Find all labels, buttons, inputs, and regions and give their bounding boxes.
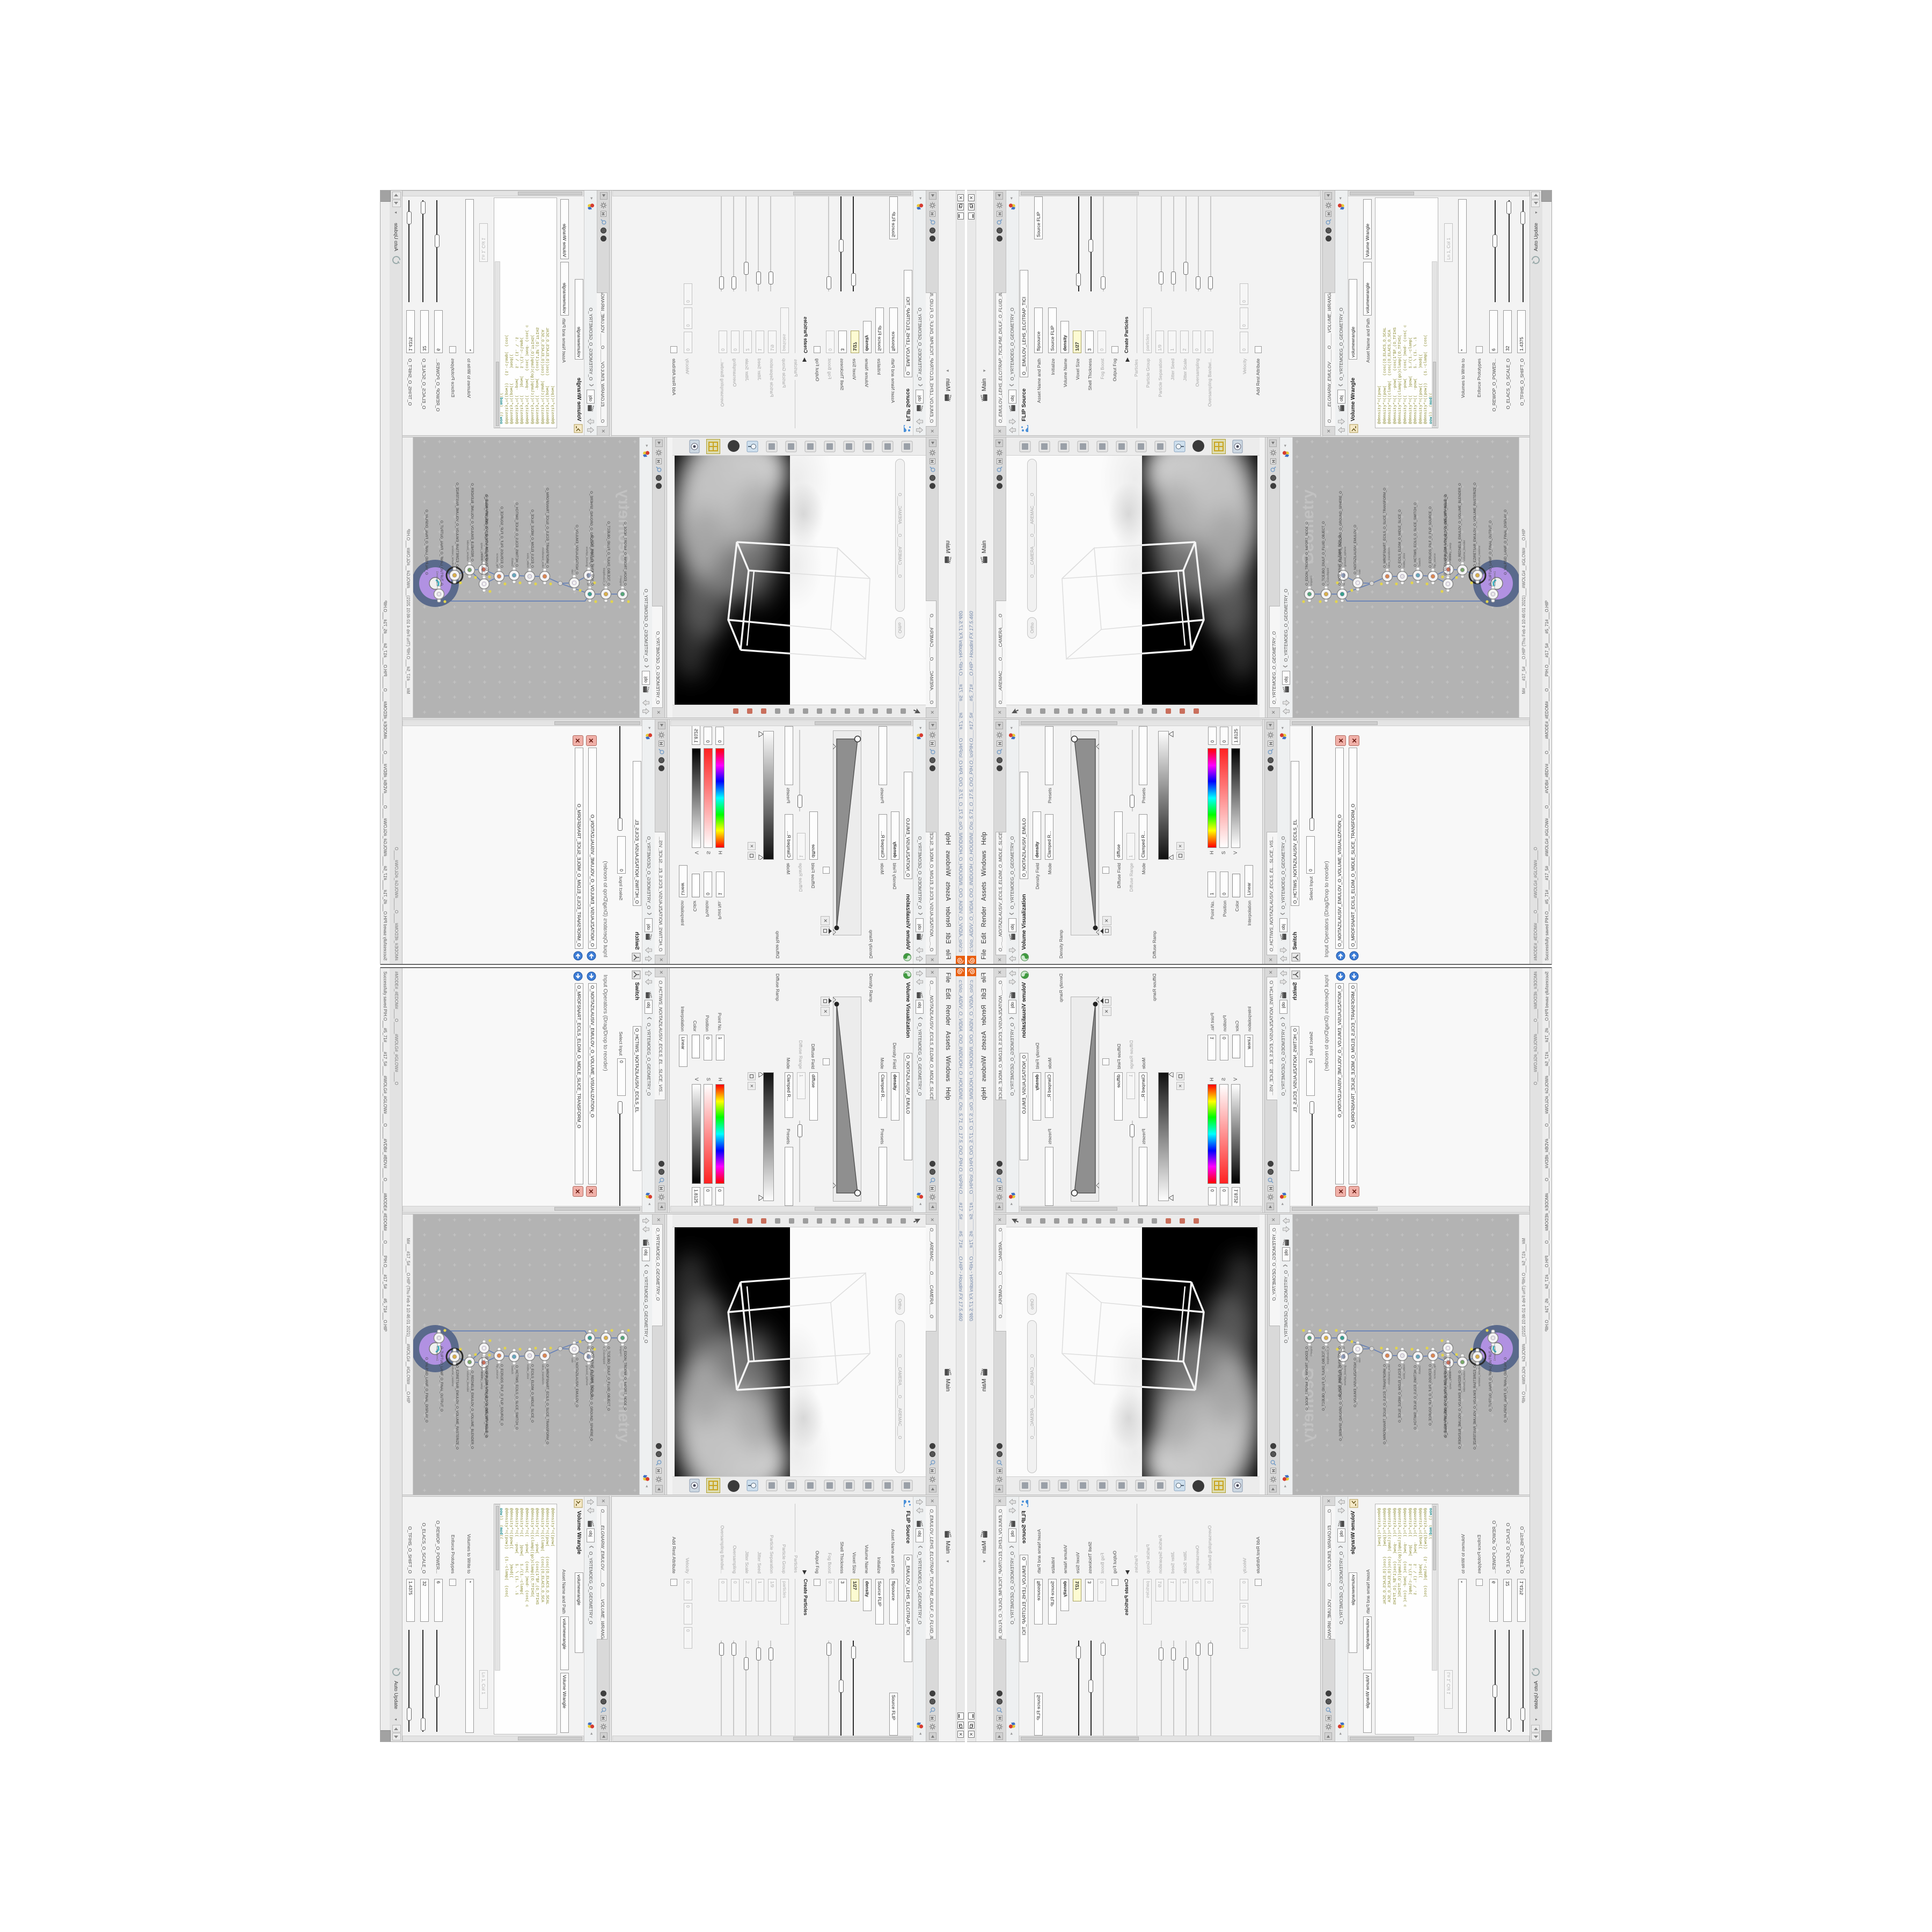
svg-text:midle_slice: midle_slice — [1403, 1364, 1406, 1379]
svg-text:volume_wrangle: volume_wrangle — [1448, 553, 1452, 575]
svg-text:O_YALPSID_LANIF_O_FINAL_DISPLA: O_YALPSID_LANIF_O_FINAL_DISPLAY_O — [425, 509, 428, 575]
svg-text:O_EDON_TROPMI_O_IMPORT_NODE_O: O_EDON_TROPMI_O_IMPORT_NODE_O — [1305, 1346, 1309, 1410]
svg-text:O_NOITAZILAUSIV_EMULOV_O: O_NOITAZILAUSIV_EMULOV_O — [575, 1358, 579, 1407]
svg-text:volume_rasteriz: volume_rasteriz — [1478, 545, 1481, 567]
svg-text:e_Cubeliquid: e_Cubeliquid — [1327, 568, 1330, 586]
svg-text:O_EZIRETSAR_EMULOV_O_VOLUME_RA: O_EZIRETSAR_EMULOV_O_VOLUME_RASTERIZE_O — [1473, 482, 1477, 567]
svg-text:e_Cubeliquid: e_Cubeliquid — [602, 568, 605, 586]
svg-text:O_XOB_KNAT_O_TANK_BOX_O: O_XOB_KNAT_O_TANK_BOX_O — [590, 536, 594, 586]
svg-text:O_HCTIWS_ECILS_O_SLICE_SWITCH_: O_HCTIWS_ECILS_O_SLICE_SWITCH_O — [515, 1365, 518, 1430]
svg-text:O_ECRUOS_PILF_O_FLIP_SOURCE_O: O_ECRUOS_PILF_O_FLIP_SOURCE_O — [500, 507, 503, 568]
svg-text:O_ECILS_ELDIM_O_MIDLE_SLICE_O: O_ECILS_ELDIM_O_MIDLE_SLICE_O — [530, 509, 534, 568]
svg-text:ground_sphere: ground_sphere — [585, 546, 588, 567]
svg-text:O_EZIRETSAR_EMULOV_O_VOLUME_RA: O_EZIRETSAR_EMULOV_O_VOLUME_RASTERIZE_O — [455, 1365, 459, 1450]
svg-text:O_EDON_TROPMI_O_IMPORT_NODE_O: O_EDON_TROPMI_O_IMPORT_NODE_O — [623, 1346, 627, 1410]
svg-text:e_Cubeliquid: e_Cubeliquid — [1327, 1346, 1330, 1364]
svg-text:import1: import1 — [619, 575, 622, 586]
svg-text:O_TCEJBO_DIULF_O_FLUID_OBJECT_: O_TCEJBO_DIULF_O_FLUID_OBJECT_O — [606, 521, 610, 586]
svg-text:O_TCEJBO_DIULF_O_FLUID_OBJECT_: O_TCEJBO_DIULF_O_FLUID_OBJECT_O — [1322, 1346, 1326, 1411]
svg-text:O_ECRUOS_PILF_O_FLIP_SOURCE_O: O_ECRUOS_PILF_O_FLIP_SOURCE_O — [1429, 507, 1432, 568]
svg-text:O_ELGNARW_EMULOV_O_VOLUME_WRAN: O_ELGNARW_EMULOV_O_VOLUME_WRANGLE_O — [485, 495, 488, 575]
svg-text:O_ECILS_ELDIM_O_MIDLE_SLICE_O: O_ECILS_ELDIM_O_MIDLE_SLICE_O — [1398, 509, 1402, 568]
svg-text:flip_source: flip_source — [1433, 553, 1437, 568]
svg-text:O_EZIRETSAR_EMULOV_O_VOLUME_RA: O_EZIRETSAR_EMULOV_O_VOLUME_RASTERIZE_O — [455, 482, 459, 567]
svg-text:O_XOB_KNAT_O_TANK_BOX_O: O_XOB_KNAT_O_TANK_BOX_O — [1338, 536, 1342, 586]
svg-text:O_REDNELB_EMULOV_O_VOLUME_BLEN: O_REDNELB_EMULOV_O_VOLUME_BLENDER_O — [1458, 483, 1462, 561]
svg-text:Switch: Switch — [1418, 1365, 1422, 1374]
svg-text:flip_source: flip_source — [1433, 1364, 1437, 1379]
svg-text:midle_slice: midle_slice — [526, 553, 529, 568]
svg-text:O_MROFSNART_ECILS_O_SLICE_TRAN: O_MROFSNART_ECILS_O_SLICE_TRANSFORM_O — [545, 488, 549, 568]
svg-text:slice_transform: slice_transform — [541, 1364, 544, 1385]
svg-text:O_EZIRETSAR_EMULOV_O_VOLUME_RA: O_EZIRETSAR_EMULOV_O_VOLUME_RASTERIZE_O — [1473, 1365, 1477, 1450]
svg-text:O_YALPSID_LANIF_O_FINAL_DISPLA: O_YALPSID_LANIF_O_FINAL_DISPLAY_O — [1504, 509, 1507, 575]
svg-text:O_TUPTUO_LANIF_O_FINAL_OUTPUT_: O_TUPTUO_LANIF_O_FINAL_OUTPUT_O — [440, 521, 443, 586]
svg-text:transform1: transform1 — [435, 571, 438, 586]
svg-text:tank_box: tank_box — [1343, 573, 1346, 586]
svg-text:O_TCEJBO_DIULF_O_FLUID_OBJECT_: O_TCEJBO_DIULF_O_FLUID_OBJECT_O — [606, 1346, 610, 1411]
svg-text:O_ELGNARW_EMULOV_O_VOLUME_WRAN: O_ELGNARW_EMULOV_O_VOLUME_WRANGLE_O — [485, 1357, 488, 1437]
svg-text:O_NOITAZILAUSIV_EMULOV_O: O_NOITAZILAUSIV_EMULOV_O — [1353, 1358, 1357, 1407]
svg-text:O_YALPSID_LANIF_O_FINAL_DISPLA: O_YALPSID_LANIF_O_FINAL_DISPLAY_O — [425, 1357, 428, 1423]
svg-text:volume_rasteriz: volume_rasteriz — [451, 545, 454, 567]
svg-text:O_REDNELB_EMULOV_O_VOLUME_BLEN: O_REDNELB_EMULOV_O_VOLUME_BLENDER_O — [470, 483, 474, 561]
svg-text:import1: import1 — [619, 1346, 622, 1357]
svg-text:O_EDON_TROPMI_O_IMPORT_NODE_O: O_EDON_TROPMI_O_IMPORT_NODE_O — [1305, 522, 1309, 586]
svg-text:import1: import1 — [1310, 575, 1313, 586]
svg-text:volume_wrangle: volume_wrangle — [480, 553, 484, 575]
svg-text:tank_box: tank_box — [586, 1346, 589, 1359]
svg-text:Switch: Switch — [1418, 558, 1422, 567]
svg-text:O_ELGNARW_EMULOV_O_VOLUME_WRAN: O_ELGNARW_EMULOV_O_VOLUME_WRANGLE_O — [1444, 495, 1447, 575]
svg-text:O_TUPTUO_LANIF_O_FINAL_OUTPUT_: O_TUPTUO_LANIF_O_FINAL_OUTPUT_O — [1489, 521, 1492, 586]
svg-text:O_EDON_TROPMI_O_IMPORT_NODE_O: O_EDON_TROPMI_O_IMPORT_NODE_O — [623, 522, 627, 586]
svg-text:O_MROFSNART_ECILS_O_SLICE_TRAN: O_MROFSNART_ECILS_O_SLICE_TRANSFORM_O — [545, 1364, 549, 1444]
svg-text:volume_blender: volume_blender — [466, 1371, 469, 1392]
svg-text:Switch: Switch — [510, 558, 514, 567]
svg-text:tank_box: tank_box — [1343, 1346, 1346, 1359]
svg-text:O_TUPTUO_LANIF_O_FINAL_OUTPUT_: O_TUPTUO_LANIF_O_FINAL_OUTPUT_O — [440, 1346, 443, 1411]
svg-text:O_ECILS_ELDIM_O_MIDLE_SLICE_O: O_ECILS_ELDIM_O_MIDLE_SLICE_O — [530, 1364, 534, 1423]
svg-text:slice_transform: slice_transform — [541, 547, 544, 568]
svg-text:volume_rasteriz: volume_rasteriz — [451, 1365, 454, 1387]
svg-text:volume_wrangle: volume_wrangle — [1448, 1357, 1452, 1379]
svg-text:midle_slice: midle_slice — [526, 1364, 529, 1379]
svg-text:O_REDNELB_EMULOV_O_VOLUME_BLEN: O_REDNELB_EMULOV_O_VOLUME_BLENDER_O — [1458, 1371, 1462, 1449]
svg-text:tank_box: tank_box — [586, 573, 589, 586]
svg-text:O_ECRUOS_PILF_O_FLIP_SOURCE_O: O_ECRUOS_PILF_O_FLIP_SOURCE_O — [1429, 1364, 1432, 1425]
svg-text:Switch: Switch — [510, 1365, 514, 1374]
svg-text:import1: import1 — [1310, 1346, 1313, 1357]
svg-text:slice_transform: slice_transform — [1388, 547, 1391, 568]
svg-text:flip_source: flip_source — [495, 553, 499, 568]
svg-text:cab: cab — [1358, 1358, 1362, 1363]
svg-text:volume_blender: volume_blender — [466, 540, 469, 561]
svg-text:O_TCEJBO_DIULF_O_FLUID_OBJECT_: O_TCEJBO_DIULF_O_FLUID_OBJECT_O — [1322, 521, 1326, 586]
svg-text:O_ELGNARW_EMULOV_O_VOLUME_WRAN: O_ELGNARW_EMULOV_O_VOLUME_WRANGLE_O — [1444, 1357, 1447, 1437]
svg-text:slice_transform: slice_transform — [1388, 1364, 1391, 1385]
svg-text:midle_slice: midle_slice — [1403, 553, 1406, 568]
svg-text:cab: cab — [1358, 569, 1362, 574]
svg-text:O_HCTIWS_ECILS_O_SLICE_SWITCH_: O_HCTIWS_ECILS_O_SLICE_SWITCH_O — [1414, 502, 1417, 567]
svg-text:O_TUPTUO_LANIF_O_FINAL_OUTPUT_: O_TUPTUO_LANIF_O_FINAL_OUTPUT_O — [1489, 1346, 1492, 1411]
svg-text:cab: cab — [570, 1358, 574, 1363]
svg-text:O_YALPSID_LANIF_O_FINAL_DISPLA: O_YALPSID_LANIF_O_FINAL_DISPLAY_O — [1504, 1357, 1507, 1423]
svg-text:volume_blender: volume_blender — [1463, 1371, 1466, 1392]
svg-text:ground_sphere: ground_sphere — [1344, 1365, 1347, 1386]
svg-text:ground_sphere: ground_sphere — [1344, 546, 1347, 567]
svg-text:O_ECRUOS_PILF_O_FLIP_SOURCE_O: O_ECRUOS_PILF_O_FLIP_SOURCE_O — [500, 1364, 503, 1425]
svg-text:transform1: transform1 — [1494, 1346, 1497, 1361]
svg-text:O_HCTIWS_ECILS_O_SLICE_SWITCH_: O_HCTIWS_ECILS_O_SLICE_SWITCH_O — [1414, 1365, 1417, 1430]
svg-text:O_MROFSNART_ECILS_O_SLICE_TRAN: O_MROFSNART_ECILS_O_SLICE_TRANSFORM_O — [1383, 488, 1387, 568]
svg-text:volume_blender: volume_blender — [1463, 540, 1466, 561]
svg-text:transform1: transform1 — [435, 1346, 438, 1361]
svg-text:volume_wrangle: volume_wrangle — [480, 1357, 484, 1379]
svg-text:volume_rasteriz: volume_rasteriz — [1478, 1365, 1481, 1387]
svg-text:O_MROFSNART_ECILS_O_SLICE_TRAN: O_MROFSNART_ECILS_O_SLICE_TRANSFORM_O — [1383, 1364, 1387, 1444]
svg-text:O_NOITAZILAUSIV_EMULOV_O: O_NOITAZILAUSIV_EMULOV_O — [575, 525, 579, 574]
svg-text:flip_source: flip_source — [495, 1364, 499, 1379]
svg-text:O_ECILS_ELDIM_O_MIDLE_SLICE_O: O_ECILS_ELDIM_O_MIDLE_SLICE_O — [1398, 1364, 1402, 1423]
svg-text:O_XOB_KNAT_O_TANK_BOX_O: O_XOB_KNAT_O_TANK_BOX_O — [590, 1346, 594, 1396]
svg-text:O_XOB_KNAT_O_TANK_BOX_O: O_XOB_KNAT_O_TANK_BOX_O — [1338, 1346, 1342, 1396]
svg-text:ground_sphere: ground_sphere — [585, 1365, 588, 1386]
svg-text:e_Cubeliquid: e_Cubeliquid — [602, 1346, 605, 1364]
svg-text:O_REDNELB_EMULOV_O_VOLUME_BLEN: O_REDNELB_EMULOV_O_VOLUME_BLENDER_O — [470, 1371, 474, 1449]
svg-text:O_HCTIWS_ECILS_O_SLICE_SWITCH_: O_HCTIWS_ECILS_O_SLICE_SWITCH_O — [515, 502, 518, 567]
svg-text:O_NOITAZILAUSIV_EMULOV_O: O_NOITAZILAUSIV_EMULOV_O — [1353, 525, 1357, 574]
svg-text:transform1: transform1 — [1494, 571, 1497, 586]
svg-text:cab: cab — [570, 569, 574, 574]
